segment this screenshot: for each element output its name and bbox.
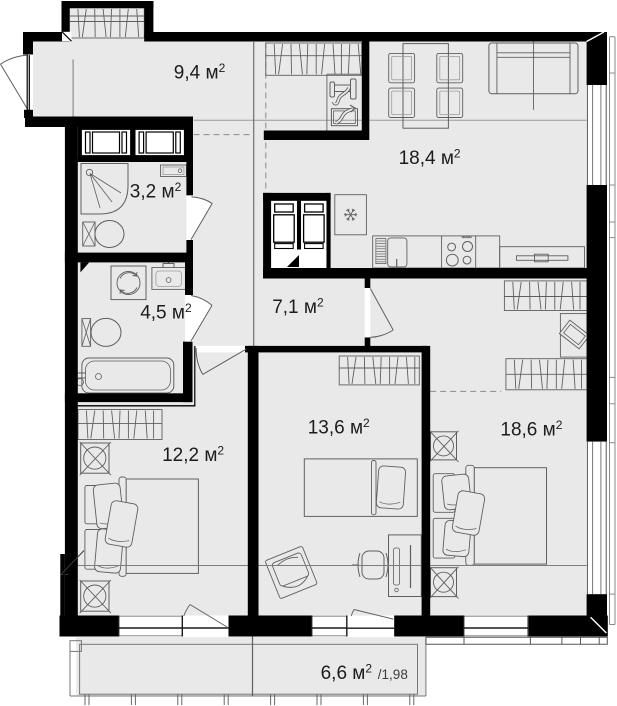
svg-text:18,6 м2: 18,6 м2 (500, 418, 562, 441)
svg-text:9,4 м2: 9,4 м2 (174, 61, 226, 84)
svg-text:13,6 м2: 13,6 м2 (308, 416, 370, 439)
svg-text:18,4 м2: 18,4 м2 (399, 147, 461, 170)
svg-text:4,5 м2: 4,5 м2 (140, 301, 192, 324)
svg-text:7,1 м2: 7,1 м2 (272, 296, 324, 319)
svg-text:12,2 м2: 12,2 м2 (162, 443, 224, 466)
svg-text:3,2 м2: 3,2 м2 (130, 180, 182, 203)
